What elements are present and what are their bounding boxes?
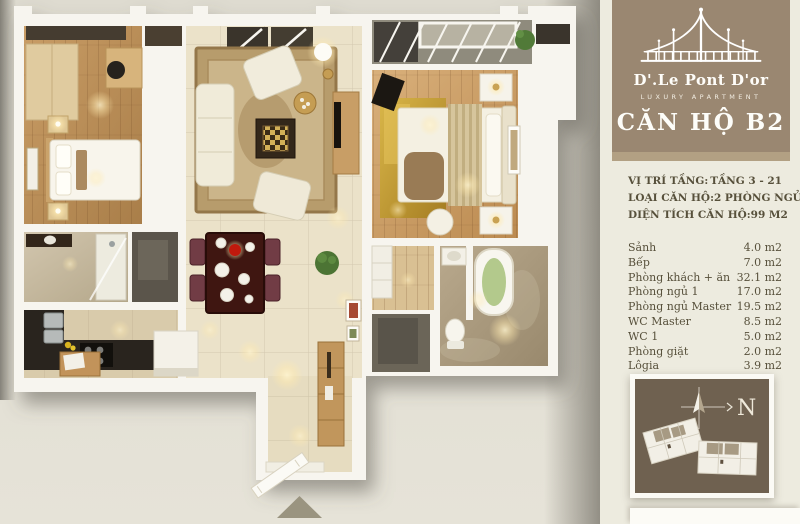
toilet	[446, 319, 465, 349]
info-row-type: LOẠI CĂN HỘ: 2 PHÒNG NGỦ	[600, 190, 800, 207]
bridge-logo-icon	[612, 6, 790, 74]
compass-label: N	[737, 396, 756, 421]
room-wc-1	[24, 232, 128, 302]
ottoman	[427, 209, 453, 235]
wall-clock	[323, 69, 333, 79]
wall-art	[27, 148, 38, 190]
plant	[315, 251, 339, 275]
room-row: Sảnh4.0 m2	[600, 241, 800, 256]
room-kitchen	[24, 310, 198, 378]
duct-slot	[536, 24, 570, 44]
entrance-arrow-icon	[277, 496, 322, 518]
header-accent-strip	[612, 152, 790, 161]
bottom-panel-edge	[630, 508, 800, 524]
room-row: Phòng khách + ăn32.1 m2	[600, 271, 800, 286]
island-cabinet	[154, 331, 198, 376]
unit-info: VỊ TRÍ TẦNG: TẦNG 3 - 21 LOẠI CĂN HỘ: 2 …	[600, 173, 800, 224]
info-row-floor: VỊ TRÍ TẦNG: TẦNG 3 - 21	[600, 173, 800, 190]
building-footprint-left	[643, 418, 704, 464]
hall-cabinet	[318, 342, 344, 446]
brand-subtitle: LUXURY APARTMENT	[612, 93, 790, 101]
left-edge-shadow	[0, 0, 16, 400]
brand-header: D'.Le Pont D'or LUXURY APARTMENT CĂN HỘ …	[612, 0, 790, 152]
side-table-flowers	[294, 92, 316, 114]
floor-plan-render	[0, 0, 600, 524]
room-row: WC 15.0 m2	[600, 330, 800, 345]
chess-coffee-table	[256, 119, 295, 158]
room-row: Phòng ngủ Master19.5 m2	[600, 300, 800, 315]
wc-partition	[466, 246, 473, 320]
sink	[44, 313, 63, 343]
wc-sink	[442, 248, 466, 265]
room-row: Lôgia3.9 m2	[600, 359, 800, 374]
kitchen-cart	[60, 352, 100, 376]
room-row: Phòng ngủ 117.0 m2	[600, 285, 800, 300]
brochure-page: D'.Le Pont D'or LUXURY APARTMENT CĂN HỘ …	[0, 0, 800, 524]
compass-needle	[699, 391, 705, 413]
info-row-area: DIỆN TÍCH CĂN HỘ: 99 M2	[600, 207, 800, 224]
unit-title: CĂN HỘ B2	[612, 109, 790, 136]
info-sidebar: D'.Le Pont D'or LUXURY APARTMENT CĂN HỘ …	[600, 0, 800, 524]
brand-name: D'.Le Pont D'or	[612, 71, 790, 89]
room-wc-master	[440, 246, 548, 366]
master-wall-art	[508, 126, 520, 174]
room-row: Bếp7.0 m2	[600, 256, 800, 271]
site-plan-map: N	[630, 374, 774, 498]
ac-vent	[26, 26, 126, 40]
hall-frames	[346, 300, 361, 341]
room-laundry	[372, 246, 434, 310]
tv-console	[333, 92, 359, 174]
room-row: WC Master8.5 m2	[600, 315, 800, 330]
wardrobe	[26, 44, 78, 120]
pendant-lamp	[314, 43, 332, 61]
room-logia	[372, 20, 535, 64]
closet-niche	[145, 26, 182, 46]
room-area-list: Sảnh4.0 m2 Bếp7.0 m2 Phòng khách + ăn32.…	[600, 241, 800, 374]
desk-and-chair	[106, 48, 142, 88]
utility-niche	[132, 232, 178, 302]
building-footprint-right	[698, 441, 757, 475]
room-master-bedroom	[371, 70, 520, 238]
room-row: Phòng giặt2.0 m2	[600, 345, 800, 360]
storage-niche	[372, 314, 430, 372]
